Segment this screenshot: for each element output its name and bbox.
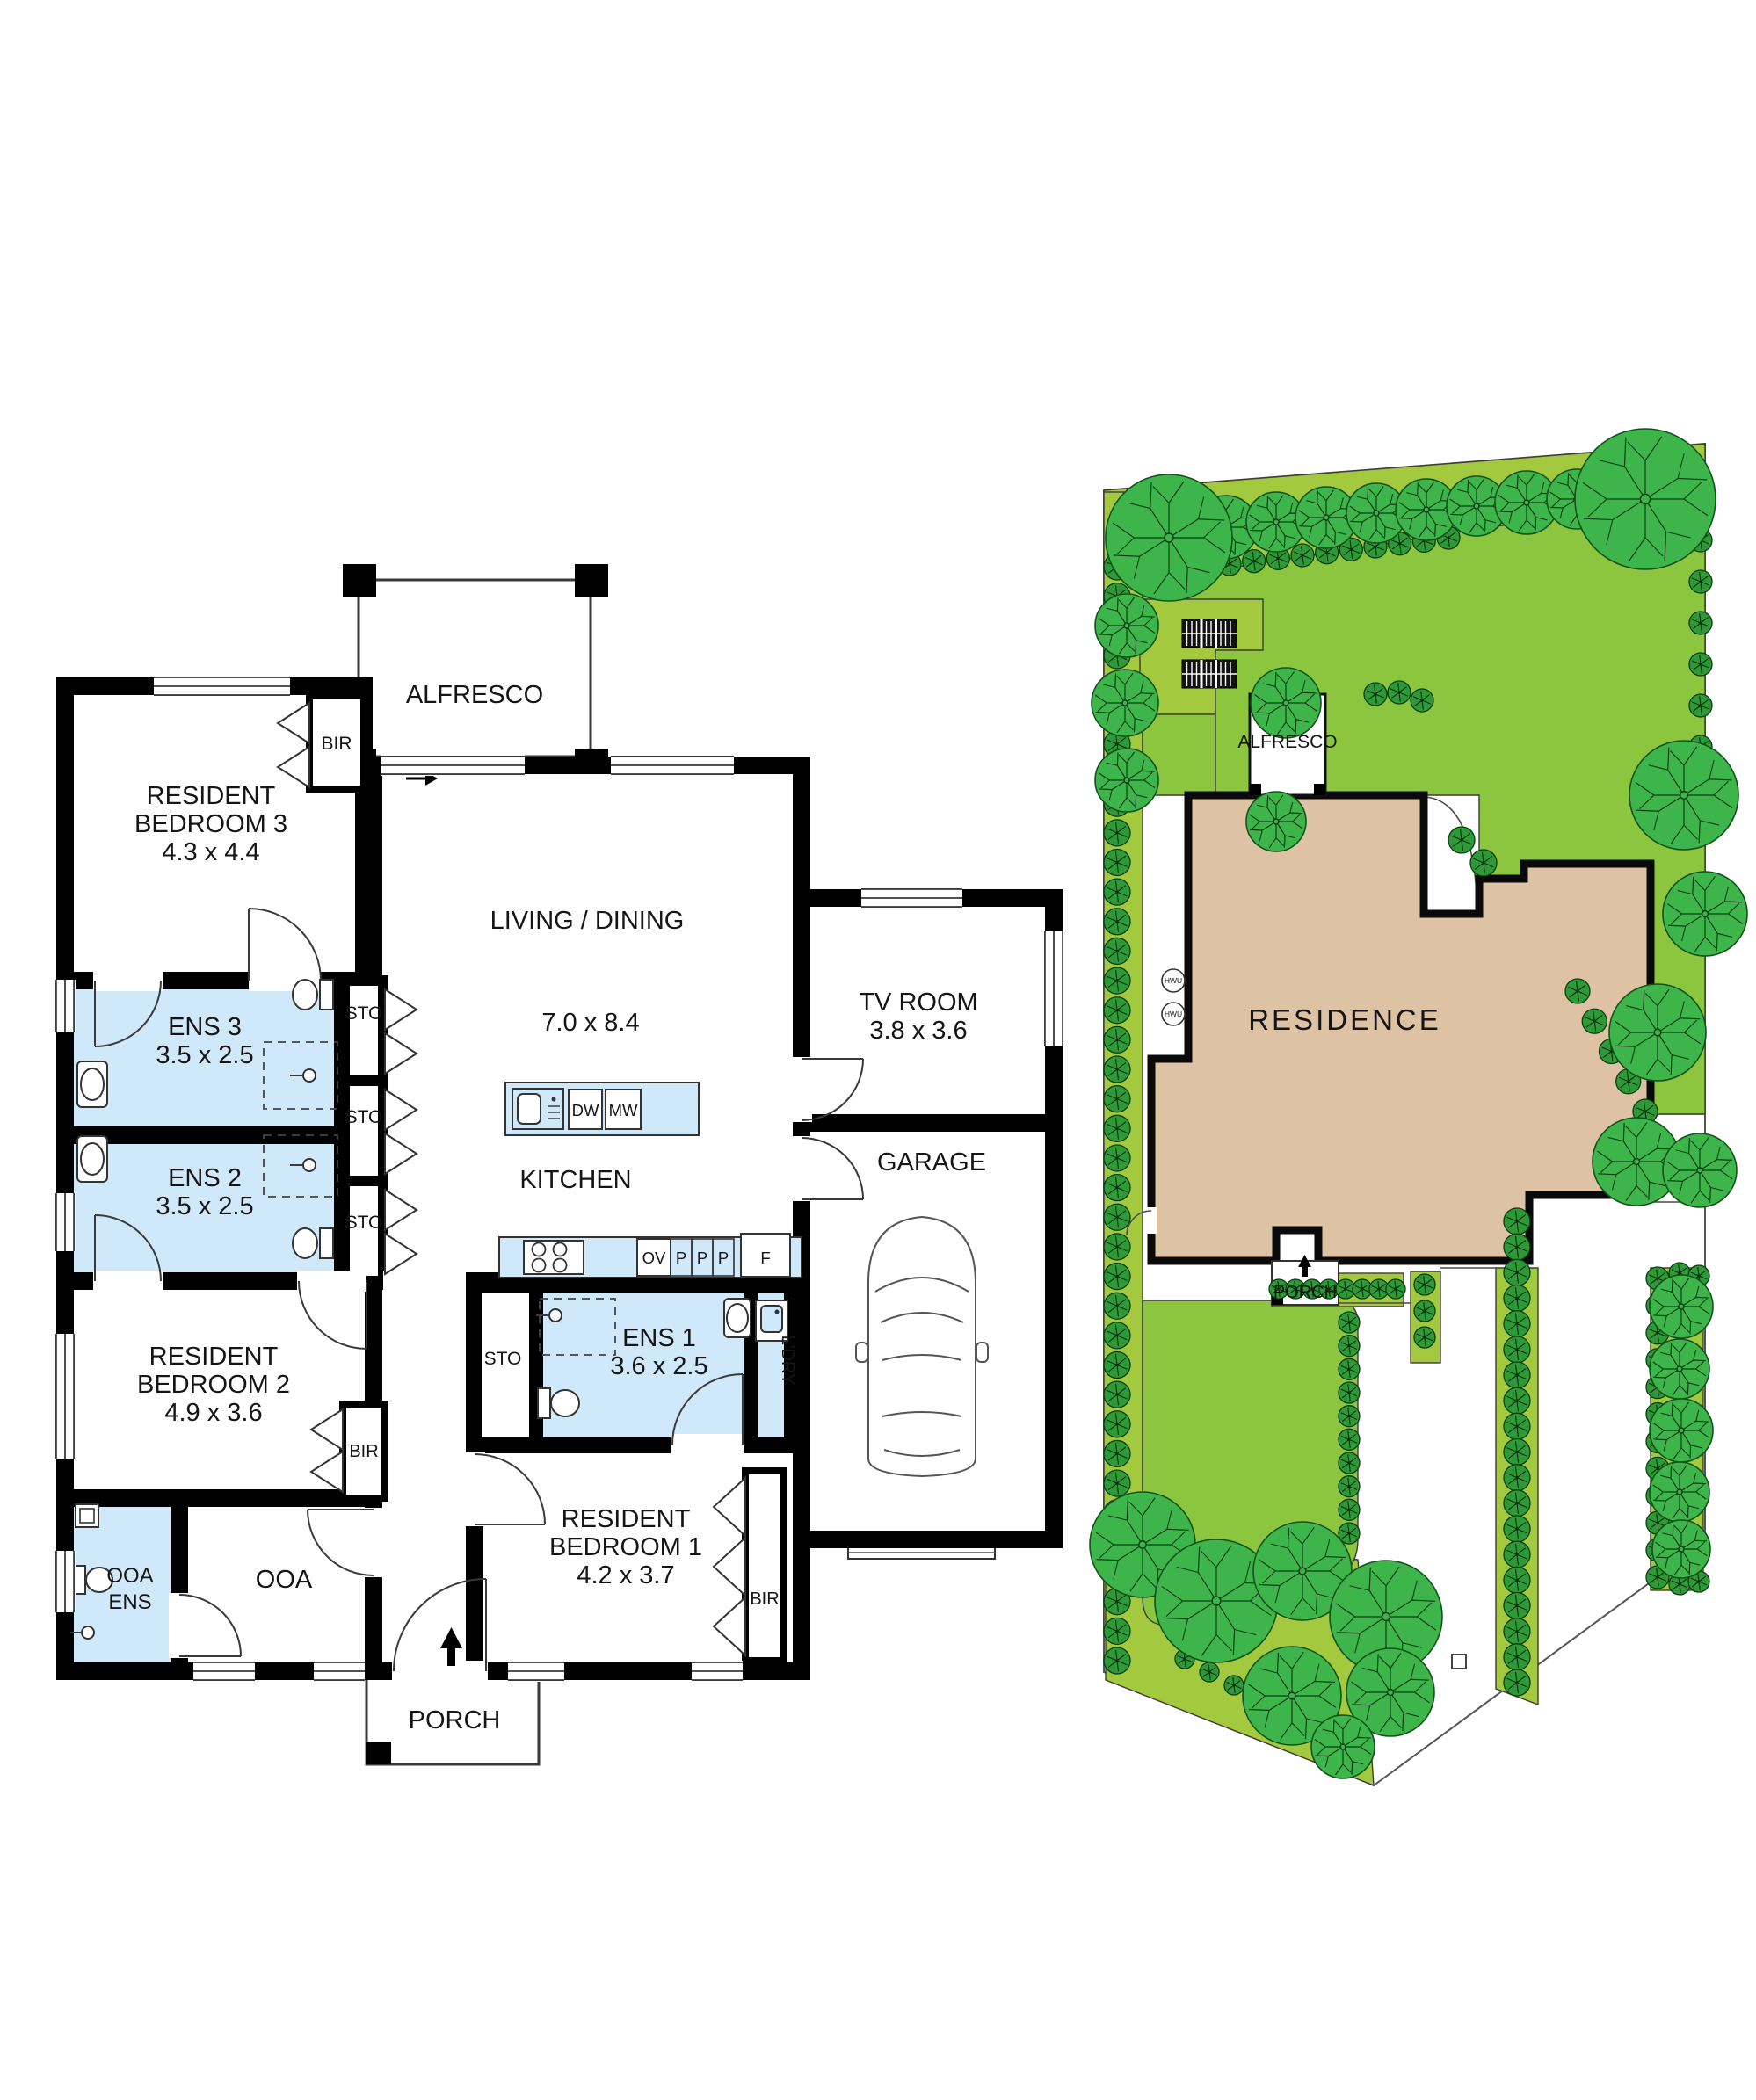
shrub-icon [1504,1362,1530,1388]
tree-icon [1095,749,1158,812]
shrub-icon [1504,1567,1530,1593]
tree-icon [1609,984,1706,1081]
shrub-icon [1504,1618,1530,1645]
shrub-icon [1689,653,1712,676]
shrub-icon [1339,1382,1360,1403]
shrub-icon [1104,1618,1130,1644]
robe-bedroom1 [745,1471,784,1661]
shrub-icon [1339,1429,1360,1450]
svg-text:STO: STO [345,1107,383,1127]
tree-icon [1575,429,1716,569]
shrub-icon [1104,1204,1130,1230]
kitchen-island [505,1083,699,1135]
label-tv: TV ROOM [859,988,977,1017]
floor-plan: ALFRESCO RESIDENT BEDROOM 3 4.3 x 4.4 BI… [54,564,1064,1764]
shrub-icon [1104,1026,1130,1053]
label-ooa-ens: OOA [106,1564,153,1588]
shrub-icon [1104,1086,1130,1112]
svg-text:P: P [718,1249,729,1267]
shrub-icon [1504,1413,1530,1439]
shrub-icon [1470,850,1497,876]
hallway [374,1281,475,1671]
shrub-icon [1386,1279,1405,1299]
shrub-icon [1339,1499,1360,1520]
shrub-icon [1104,1293,1130,1319]
svg-text:STO: STO [484,1349,522,1369]
label-hwu: HWU [1165,976,1182,985]
tree-icon [1663,872,1747,956]
shrub-icon [1104,1234,1130,1260]
shrub-icon [1104,1352,1130,1379]
toilet-icon [320,980,333,1010]
floorplan-page: ALFRESCO RESIDENT BEDROOM 3 4.3 x 4.4 BI… [0,0,1756,2100]
shrub-icon [1104,1381,1130,1408]
label-residence: RESIDENCE [1248,1003,1441,1036]
plan-canvas: ALFRESCO RESIDENT BEDROOM 3 4.3 x 4.4 BI… [0,0,1756,2100]
label-laundry: L'DRY [778,1336,797,1386]
shrub-icon [1104,1264,1130,1290]
shrub-icon [1414,1274,1435,1295]
shrub-icon [1504,1285,1530,1312]
svg-text:BIR: BIR [349,1442,378,1461]
shrub-icon [1504,1234,1530,1260]
storage-1 [345,981,383,1081]
tree-icon [1106,474,1232,601]
label-porch: PORCH [409,1706,501,1734]
shrub-icon [1414,1327,1435,1348]
site-plan: RESIDENCE ALFRESCO PORCH HWU HWU [1090,429,1747,1785]
shrub-icon [1104,1647,1130,1674]
storage-2 [345,1081,383,1181]
tree-icon [1652,1520,1710,1578]
svg-text:7.0 x 8.4: 7.0 x 8.4 [541,1009,639,1037]
shrub-icon [1504,1208,1530,1235]
alfresco-area [343,564,608,782]
shrub-icon [1504,1439,1530,1466]
shrub-icon [1291,544,1314,567]
toilet-icon [320,1228,333,1258]
svg-text:3.8 x 3.6: 3.8 x 3.6 [869,1017,967,1045]
label-sto: STO [345,1003,383,1024]
shrub-icon [1411,689,1433,712]
svg-text:STO: STO [345,1213,383,1233]
label-ooa: OOA [256,1566,313,1594]
svg-text:4.9 x 3.6: 4.9 x 3.6 [164,1399,262,1427]
shrub-icon [1504,1516,1530,1542]
label-ens2: ENS 2 [168,1164,242,1192]
label-bedroom1: RESIDENT [562,1505,691,1533]
label-dw: DW [572,1101,599,1119]
shrub-icon [1104,849,1130,875]
shrub-icon [1104,938,1130,964]
shrub-icon [1104,1115,1130,1141]
tree-icon [1663,1133,1737,1207]
shrub-icon [1448,827,1475,853]
car-icon [856,1217,988,1476]
tree-icon [1095,594,1158,657]
garage-door [848,1546,995,1559]
svg-text:BIR: BIR [750,1589,779,1609]
shrub-icon [1200,1662,1219,1682]
label-living: LIVING / DINING [490,907,685,935]
shrub-icon [1364,683,1387,706]
shrub-icon [1104,1145,1130,1171]
shrub-icon [1689,570,1712,593]
shrub-icon [1339,1336,1360,1357]
shrub-icon [1104,820,1130,846]
label-ov: OV [642,1249,666,1267]
shrub-icon [1339,1312,1360,1333]
label-kitchen: KITCHEN [519,1166,631,1194]
sink-icon [518,1094,541,1124]
shrub-icon [1504,1541,1530,1568]
label-garage: GARAGE [877,1148,986,1177]
label-p: P [676,1249,686,1267]
shrub-icon [1104,1056,1130,1083]
shrub-icon [1104,997,1130,1024]
shrub-icon [1582,1009,1607,1033]
shrub-icon [1504,1465,1530,1491]
shrub-icon [1339,1452,1360,1474]
svg-text:4.2 x 3.7: 4.2 x 3.7 [577,1561,674,1589]
svg-text:BEDROOM 3: BEDROOM 3 [134,810,287,838]
label-bedroom3: RESIDENT [147,782,276,810]
shrub-icon [1104,1470,1130,1496]
tree-icon [1650,1462,1709,1522]
svg-text:3.5 x 2.5: 3.5 x 2.5 [156,1041,253,1069]
svg-text:BEDROOM 2: BEDROOM 2 [137,1371,290,1399]
svg-text:BEDROOM 1: BEDROOM 1 [549,1533,702,1561]
shrub-icon [1504,1336,1530,1363]
shrub-icon [1388,681,1411,704]
tree-icon [1650,1275,1713,1338]
tree-icon [1092,670,1158,736]
shrub-icon [1104,1411,1130,1437]
shrub-icon [1339,1476,1360,1497]
tree-icon [1251,668,1321,738]
basin-icon [76,1504,98,1527]
label-alfresco: ALFRESCO [406,681,543,709]
label-site-porch: PORCH [1273,1283,1337,1302]
shrub-icon [1504,1593,1530,1619]
shrub-icon [1104,909,1130,935]
dims-bedroom3: 4.3 x 4.4 [162,838,259,866]
shrub-icon [1504,1490,1530,1517]
shrub-icon [1504,1387,1530,1414]
shrub-icon [1504,1311,1530,1337]
shrub-icon [1104,1175,1130,1201]
shrub-icon [1689,612,1712,634]
label-ens3: ENS 3 [168,1013,242,1041]
shrub-icon [1414,1300,1435,1322]
svg-text:HWU: HWU [1165,1010,1182,1018]
tree-icon [1246,792,1306,851]
label-ens1: ENS 1 [622,1324,696,1352]
shrub-icon [1243,550,1266,573]
tree-icon [1629,741,1738,850]
toilet-icon [538,1388,550,1418]
tree-icon [1650,1339,1709,1399]
label-f: F [760,1249,770,1267]
shrub-icon [1689,694,1712,717]
svg-text:ENS: ENS [108,1590,151,1614]
letterbox-icon [1452,1655,1466,1669]
shrub-icon [1504,1644,1530,1670]
tree-icon [1311,1715,1375,1778]
label-bedroom2: RESIDENT [149,1343,279,1371]
shrub-icon [1504,1259,1530,1285]
shrub-icon [1504,1669,1530,1696]
shrub-icon [1565,979,1590,1003]
shrub-icon [1104,1440,1130,1466]
shrub-icon [1104,879,1130,905]
svg-text:P: P [697,1249,707,1267]
label-mw: MW [609,1101,638,1119]
tree-icon [1650,1399,1713,1462]
shrub-icon [1104,1322,1130,1349]
shrub-icon [1339,1358,1360,1379]
shrub-icon [1224,1676,1244,1695]
shrub-icon [1339,1406,1360,1427]
svg-text:3.5 x 2.5: 3.5 x 2.5 [156,1192,253,1220]
svg-text:3.6 x 2.5: 3.6 x 2.5 [610,1352,707,1380]
shrub-icon [1104,967,1130,994]
label-site-alfresco: ALFRESCO [1237,732,1337,752]
label-bir: BIR [321,734,352,754]
